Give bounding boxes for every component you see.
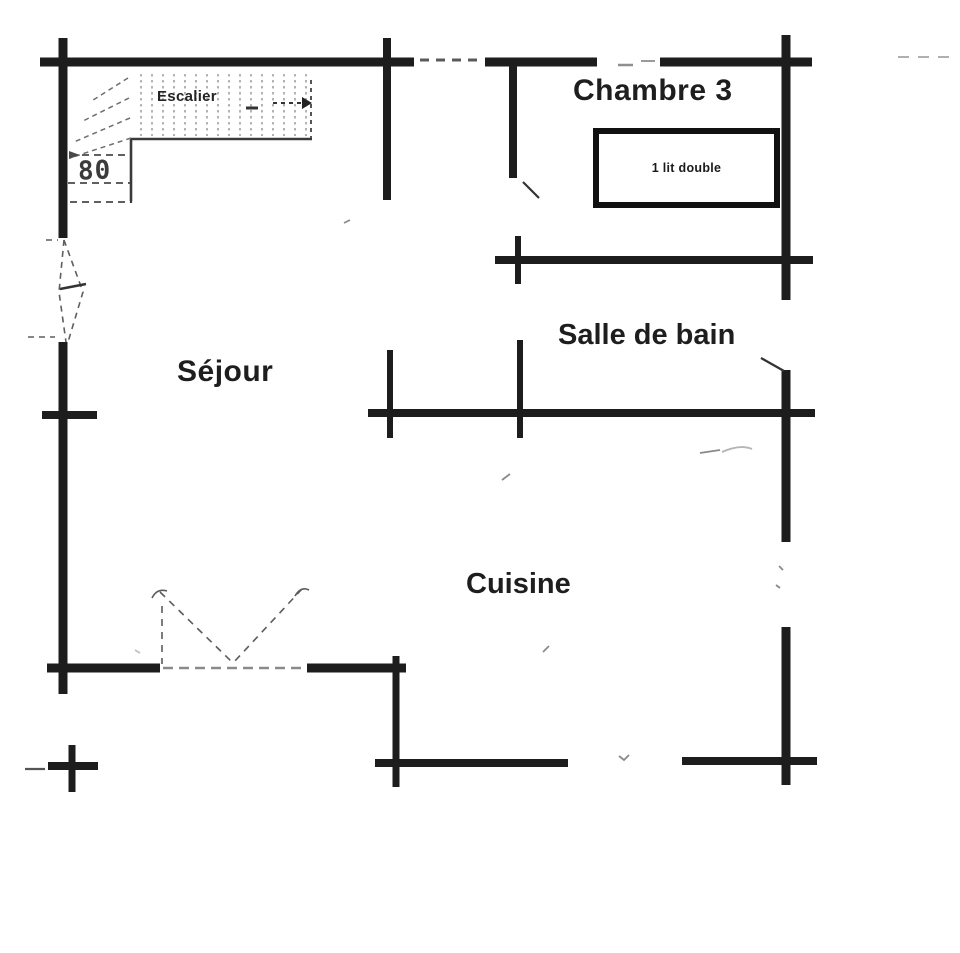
double-door-arc-right [295, 589, 309, 596]
scan-noise [25, 220, 783, 769]
openings [28, 182, 784, 664]
bed-label: 1 lit double [593, 128, 780, 208]
floor-plan-drawing [0, 0, 960, 953]
floor-plan-page: Escalier Chambre 3 1 lit double Salle de… [0, 0, 960, 953]
door-tick-right-wall [761, 358, 784, 371]
room-label-salle-de-bain: Salle de bain [558, 319, 735, 352]
stair-winders [70, 78, 131, 158]
room-label-cuisine: Cuisine [466, 568, 571, 601]
room-label-chambre3: Chambre 3 [573, 74, 733, 108]
room-label-sejour: Séjour [177, 355, 273, 389]
door-tick-chambre3 [523, 182, 539, 198]
double-door-sejour [160, 589, 302, 664]
stair-width-dimension: 80 [77, 155, 111, 186]
room-label-escalier: Escalier [157, 88, 217, 105]
window-left-center-tick [60, 284, 86, 289]
window-left-wall [28, 240, 83, 342]
stair-steps [141, 74, 306, 136]
